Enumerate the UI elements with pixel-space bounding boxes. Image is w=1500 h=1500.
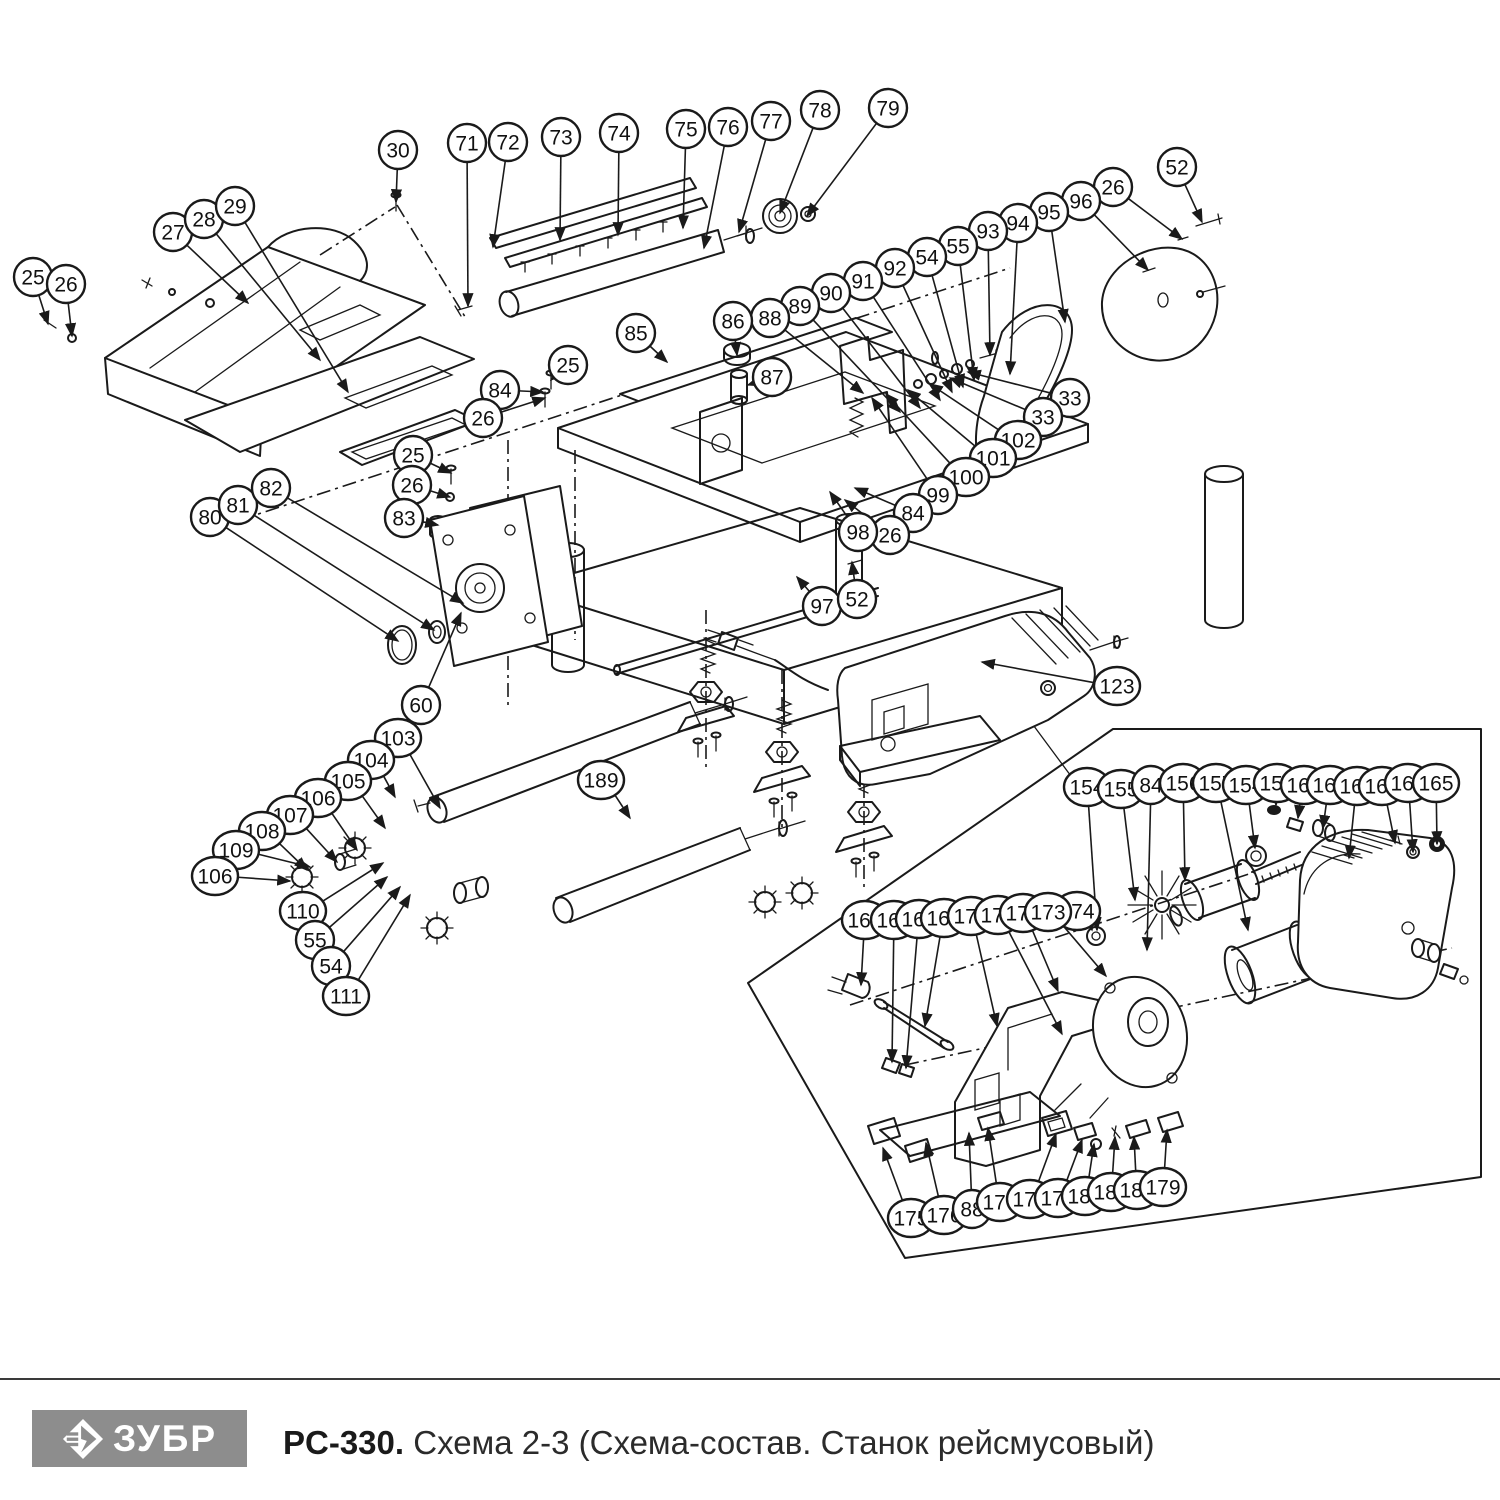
callout-88: 88 <box>751 299 789 337</box>
leader-line-84 <box>519 391 543 392</box>
leader-line-180 <box>1089 1144 1094 1177</box>
brand-name: ЗУБР <box>113 1420 217 1457</box>
model-number: PC-330. <box>283 1424 404 1461</box>
leader-line-74 <box>618 152 619 235</box>
leader-line-77 <box>739 139 766 232</box>
svg-text:52: 52 <box>1165 157 1188 180</box>
svg-text:76: 76 <box>716 117 739 140</box>
svg-text:72: 72 <box>496 132 519 155</box>
leader-line-170 <box>976 934 997 1026</box>
motor-assembly <box>704 606 1128 786</box>
callout-75: 75 <box>667 110 705 148</box>
callout-86: 86 <box>714 302 752 340</box>
callout-76: 76 <box>709 108 747 146</box>
svg-text:26: 26 <box>54 274 77 297</box>
leader-line-52 <box>852 562 854 580</box>
svg-text:26: 26 <box>471 408 494 431</box>
leader-line-179 <box>1165 1130 1167 1168</box>
leader-line-73 <box>560 156 561 240</box>
svg-text:75: 75 <box>674 119 697 142</box>
callout-74: 74 <box>600 114 638 152</box>
svg-text:85: 85 <box>624 323 647 346</box>
svg-text:91: 91 <box>851 271 874 294</box>
callout-71: 71 <box>448 124 486 162</box>
svg-text:79: 79 <box>876 98 899 121</box>
svg-text:81: 81 <box>226 495 249 518</box>
leader-line-172 <box>1032 930 1058 991</box>
callout-111: 111 <box>323 977 369 1015</box>
callout-123: 123 <box>1094 667 1140 705</box>
leader-line-85 <box>650 346 667 362</box>
svg-text:29: 29 <box>223 196 246 219</box>
leader-line-54 <box>343 887 400 952</box>
cutter-head-assembly <box>455 178 815 319</box>
leader-line-189 <box>615 795 630 818</box>
svg-text:83: 83 <box>392 508 415 531</box>
svg-text:86: 86 <box>721 311 744 334</box>
svg-text:123: 123 <box>1099 676 1134 699</box>
callout-83: 83 <box>385 499 423 537</box>
callout-29: 29 <box>216 187 254 225</box>
svg-text:71: 71 <box>455 133 478 156</box>
leader-line-97 <box>797 577 810 592</box>
svg-text:28: 28 <box>192 209 215 232</box>
svg-text:179: 179 <box>1145 1177 1180 1200</box>
svg-text:54: 54 <box>319 956 343 979</box>
leader-line-166 <box>861 939 864 985</box>
leader-line-160 <box>1298 804 1300 818</box>
svg-text:165: 165 <box>1418 773 1453 796</box>
svg-text:93: 93 <box>976 221 999 244</box>
svg-text:97: 97 <box>810 596 833 619</box>
leader-line-181 <box>1113 1137 1115 1173</box>
leader-line-52 <box>1185 184 1202 222</box>
svg-text:90: 90 <box>819 283 842 306</box>
svg-text:106: 106 <box>197 866 232 889</box>
svg-text:74: 74 <box>607 123 631 146</box>
svg-text:96: 96 <box>1069 191 1092 214</box>
svg-text:189: 189 <box>583 770 618 793</box>
leader-line-178 <box>1039 1134 1056 1181</box>
footer-divider <box>0 1378 1500 1380</box>
leader-line-93 <box>988 250 990 355</box>
svg-text:89: 89 <box>788 296 811 319</box>
leader-line-169 <box>925 937 940 1026</box>
leader-line-80 <box>226 527 398 641</box>
callout-52: 52 <box>1158 148 1196 186</box>
svg-text:88: 88 <box>758 308 781 331</box>
brand-logo: ЗУБР <box>32 1410 247 1467</box>
leader-line-25 <box>430 463 451 473</box>
callout-97: 97 <box>803 587 841 625</box>
callout-bubbles: 2526272829307172737475767778795226969594… <box>14 89 1459 1237</box>
callout-179: 179 <box>1140 1168 1186 1206</box>
callout-87: 87 <box>753 358 791 396</box>
leader-line-106 <box>332 813 357 850</box>
svg-text:92: 92 <box>883 258 906 281</box>
callout-85: 85 <box>617 314 655 352</box>
svg-text:30: 30 <box>386 140 409 163</box>
svg-text:26: 26 <box>878 525 901 548</box>
leader-line-182 <box>1134 1137 1136 1171</box>
leader-line-155 <box>1124 808 1135 900</box>
leader-line-165 <box>1436 802 1437 844</box>
callout-26: 26 <box>47 265 85 303</box>
svg-text:98: 98 <box>846 522 869 545</box>
leader-line-111 <box>358 895 410 980</box>
svg-text:26: 26 <box>400 475 423 498</box>
leader-line-104 <box>384 776 395 797</box>
callout-165: 165 <box>1413 764 1459 802</box>
leader-line-179 <box>1067 1140 1082 1180</box>
leader-line-157 <box>1221 802 1248 930</box>
svg-text:26: 26 <box>1101 177 1124 200</box>
leader-line-55 <box>329 877 387 927</box>
leader-line-167 <box>892 939 894 1062</box>
svg-text:55: 55 <box>946 236 969 259</box>
svg-text:78: 78 <box>808 100 831 123</box>
zubr-diamond-arrow-icon <box>62 1418 104 1460</box>
callout-25: 25 <box>549 346 587 384</box>
callout-98: 98 <box>839 513 877 551</box>
callout-26: 26 <box>393 466 431 504</box>
svg-text:27: 27 <box>161 222 184 245</box>
svg-text:111: 111 <box>330 986 362 1009</box>
diagram-caption: PC-330. Схема 2-3 (Схема-состав. Станок … <box>283 1424 1154 1462</box>
leader-line-26 <box>68 303 72 336</box>
motor-inset-parts <box>828 805 1468 1166</box>
svg-text:33: 33 <box>1058 388 1081 411</box>
leader-line-78 <box>780 128 813 213</box>
leader-line-71 <box>467 162 468 306</box>
svg-text:82: 82 <box>259 478 282 501</box>
leader-line-79 <box>807 123 877 216</box>
callout-52: 52 <box>838 580 876 618</box>
callout-73: 73 <box>542 118 580 156</box>
svg-text:95: 95 <box>1037 202 1060 225</box>
callout-78: 78 <box>801 91 839 129</box>
leader-line-106 <box>238 877 290 881</box>
callout-60: 60 <box>402 686 440 724</box>
leader-line-105 <box>362 796 385 828</box>
callout-106: 106 <box>192 857 238 895</box>
leader-line-26 <box>1128 198 1182 239</box>
callout-26: 26 <box>464 399 502 437</box>
parts-diagram-page: 2526272829307172737475767778795226969594… <box>0 0 1500 1500</box>
svg-text:84: 84 <box>488 380 512 403</box>
callout-189: 189 <box>578 761 624 799</box>
svg-text:25: 25 <box>401 445 424 468</box>
leader-line-76 <box>704 146 724 248</box>
callout-82: 82 <box>252 469 290 507</box>
svg-text:52: 52 <box>845 589 868 612</box>
exploded-view-diagram: 2526272829307172737475767778795226969594… <box>0 0 1500 1380</box>
leader-line-25 <box>39 295 48 324</box>
svg-text:25: 25 <box>556 355 579 378</box>
feed-rollers <box>286 697 818 944</box>
svg-text:54: 54 <box>915 247 939 270</box>
svg-text:77: 77 <box>759 111 782 134</box>
leader-line-110 <box>323 863 383 901</box>
leader-line-156 <box>1183 802 1185 880</box>
svg-text:80: 80 <box>198 507 221 530</box>
svg-text:25: 25 <box>21 267 44 290</box>
leader-line-161 <box>1323 804 1326 828</box>
callout-72: 72 <box>489 123 527 161</box>
svg-text:87: 87 <box>760 367 783 390</box>
leader-line-175 <box>883 1148 902 1200</box>
svg-text:173: 173 <box>1030 902 1065 925</box>
leader-line-168 <box>906 938 917 1068</box>
callout-173: 173 <box>1025 893 1071 931</box>
callout-77: 77 <box>752 102 790 140</box>
callout-79: 79 <box>869 89 907 127</box>
caption-text: Схема 2-3 (Схема-состав. Станок рейсмусо… <box>404 1424 1154 1461</box>
leader-line-96 <box>1094 215 1148 270</box>
svg-text:73: 73 <box>549 127 572 150</box>
callout-25: 25 <box>14 258 52 296</box>
svg-text:60: 60 <box>409 695 432 718</box>
svg-text:94: 94 <box>1006 213 1030 236</box>
callout-30: 30 <box>379 131 417 169</box>
leader-line-154 <box>1249 804 1255 848</box>
leader-line-107 <box>306 828 337 862</box>
